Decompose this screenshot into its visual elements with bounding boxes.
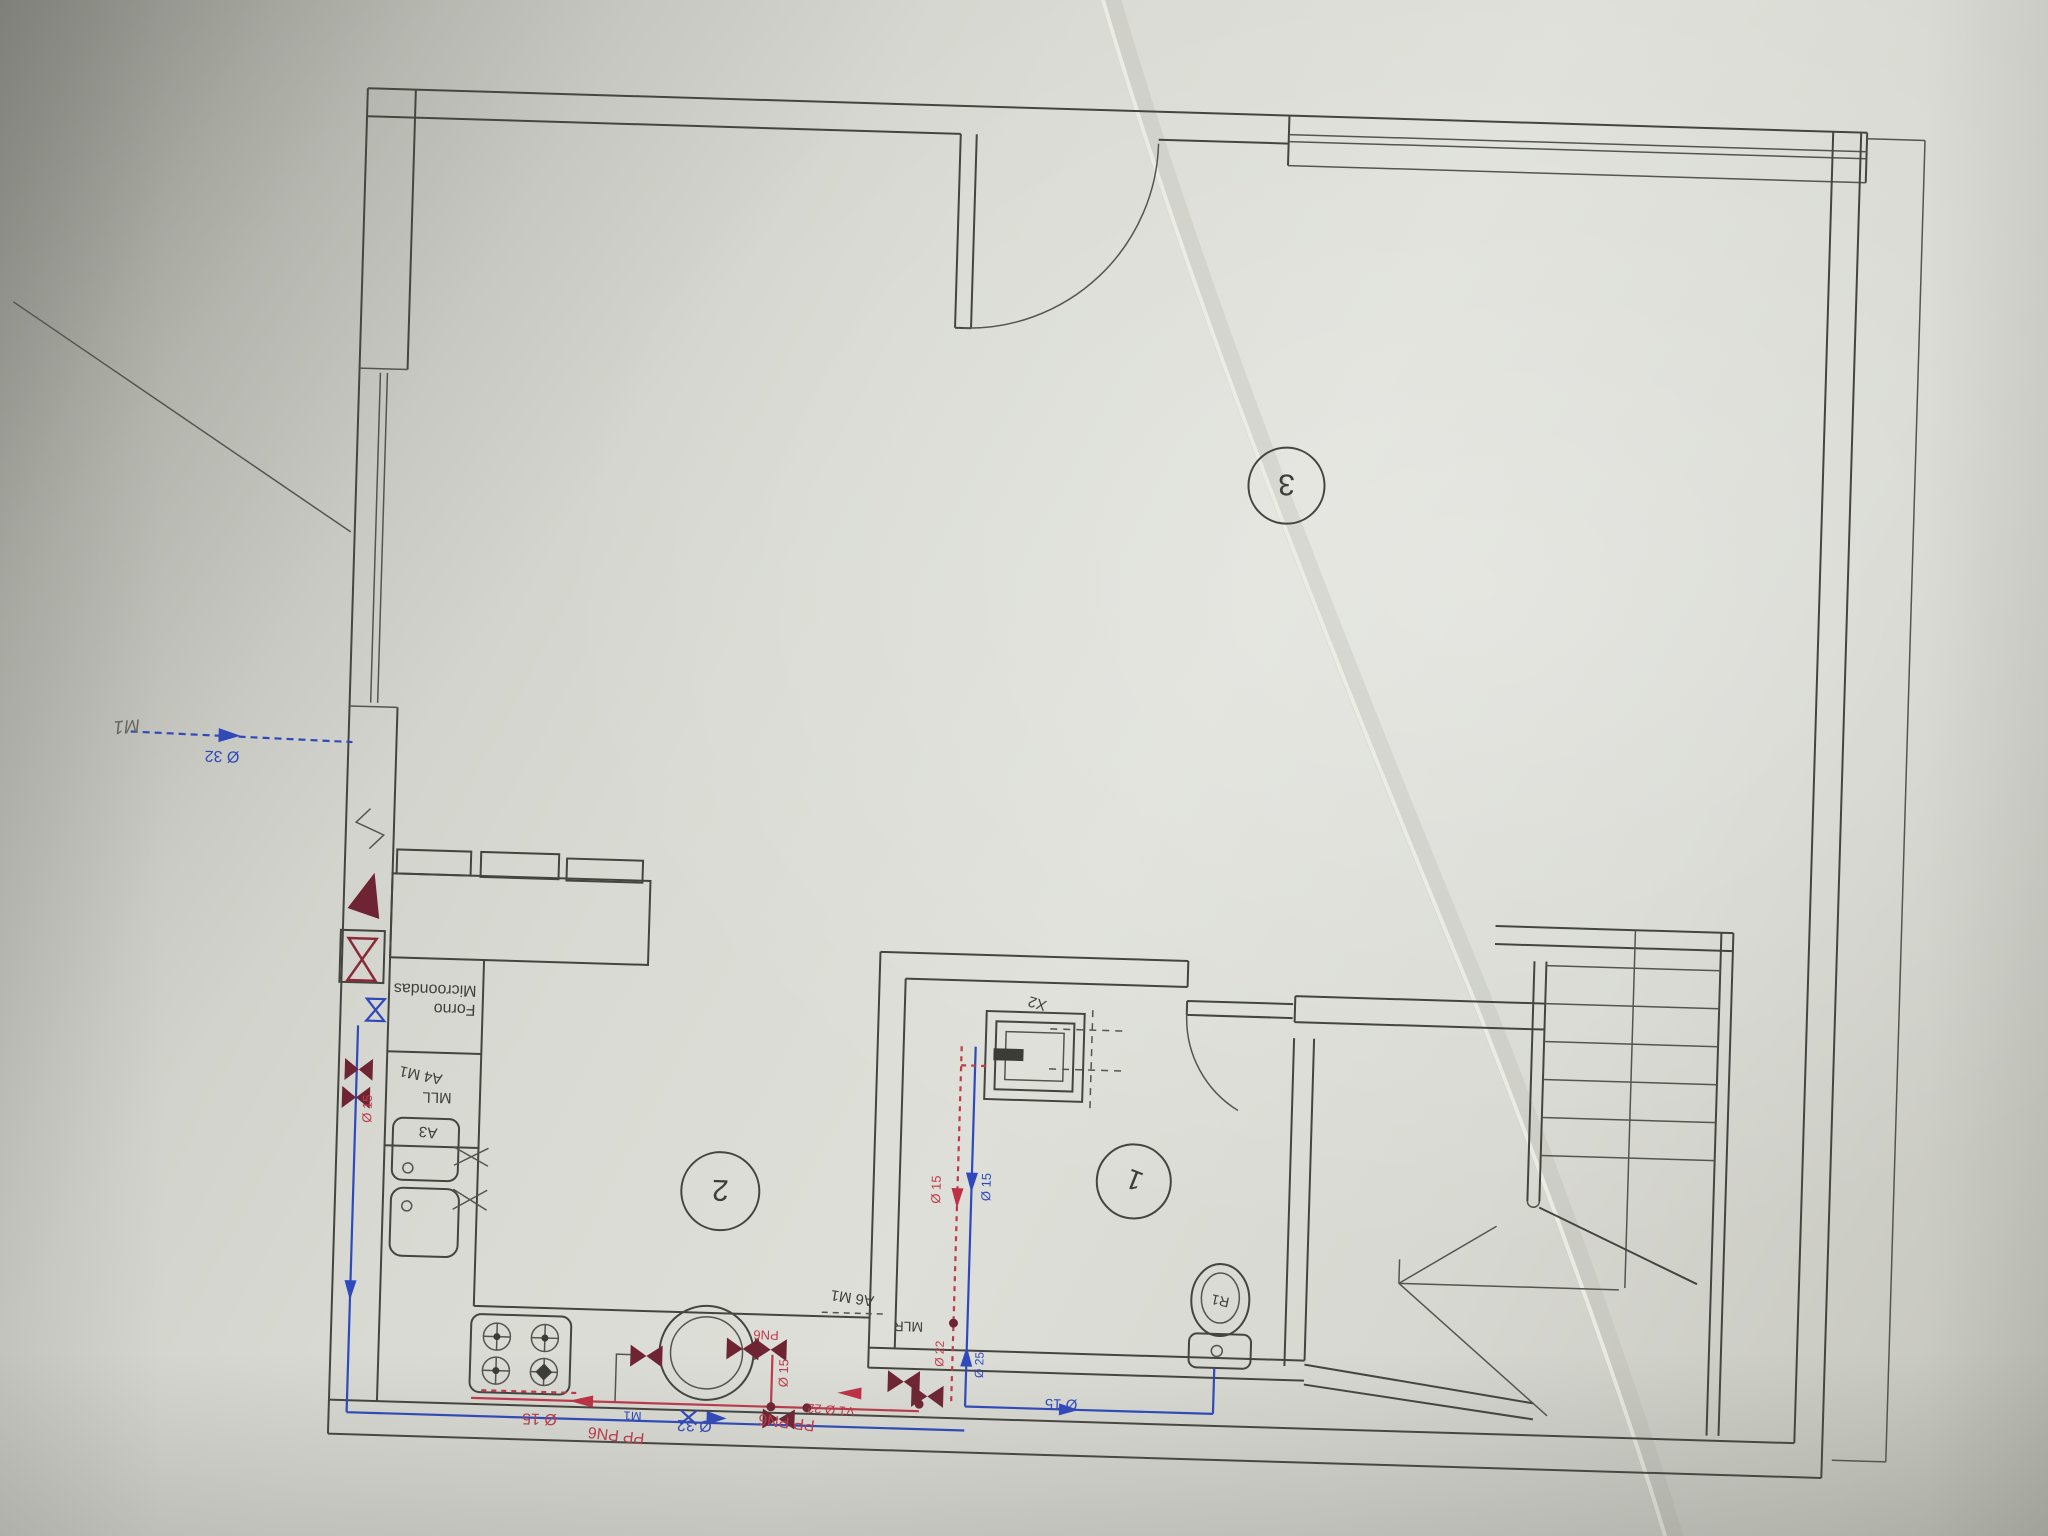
label-wc-cold-riser: Ø 15 <box>978 1173 994 1202</box>
valves <box>326 808 960 1434</box>
label-wall-hot-riser: Ø 15 <box>359 1094 375 1123</box>
wall-filter-symbol <box>347 872 380 919</box>
flow-arrow <box>837 1387 861 1400</box>
shower-tray <box>984 1007 1123 1113</box>
entry-door <box>955 134 1159 334</box>
label-valve-v1: V1 Ø 22 <box>807 1401 856 1420</box>
junction-dot <box>766 1402 775 1411</box>
label-toilet-r1: R1 <box>1210 1291 1231 1310</box>
label-microwave: Microondas <box>394 979 477 998</box>
label-main-inlet: Ø 32 <box>204 747 239 765</box>
counter-appliance-1 <box>397 849 472 875</box>
label-shower-cold-riser: Ø 25 <box>972 1351 987 1378</box>
hot-water-lines <box>471 1032 992 1419</box>
room-tag-2: 2 <box>680 1151 760 1231</box>
valve-bowtie <box>630 1345 663 1368</box>
room-tag-1: 1 <box>1096 1143 1172 1219</box>
counter-appliance-2 <box>481 852 560 879</box>
stair-treads <box>1541 966 1721 1161</box>
label-shower-x2: X2 <box>1026 992 1048 1014</box>
toilet <box>1188 1263 1253 1369</box>
meter-valve-symbol <box>347 938 376 981</box>
wc-room <box>867 952 1546 1420</box>
cold-water-lines <box>111 725 1233 1439</box>
handrail-end <box>1527 1201 1539 1207</box>
junction-dot <box>949 1319 958 1328</box>
wc-door-swing-arc <box>1184 1015 1241 1111</box>
label-kitchen-hot: Ø 15 <box>522 1409 557 1427</box>
label-kitchen-cold: Ø 32 <box>677 1416 712 1434</box>
flow-arrow <box>344 1280 357 1300</box>
label-boiler-pn6: PN6 <box>753 1327 779 1343</box>
main-inlet-line <box>131 731 353 742</box>
kitchen-counter <box>390 873 650 965</box>
washer-leader <box>822 1312 886 1314</box>
wall-break-symbol <box>355 808 384 849</box>
flow-arrow <box>965 1172 978 1192</box>
kitchen <box>377 849 899 1410</box>
lot-boundary-line <box>7 302 357 532</box>
label-washer-mlr: MLR <box>893 1318 923 1335</box>
flow-arrow <box>569 1395 593 1408</box>
labels: 2 1 3 Forno Microondas MLL A4 M1 A3 X2 R… <box>92 413 1326 1466</box>
room-number: 3 <box>1278 467 1296 500</box>
floor-plan-photo: 2 1 3 Forno Microondas MLL A4 M1 A3 X2 R… <box>0 0 2048 1536</box>
label-point-a6: A6 M1 <box>830 1286 875 1309</box>
label-boiler-out: Ø 15 <box>776 1359 792 1388</box>
window-top-right <box>1288 116 1867 183</box>
shower-drain <box>993 1048 1023 1061</box>
drawing: 2 1 3 Forno Microondas MLL A4 M1 A3 X2 R… <box>0 78 1925 1483</box>
room-number: 1 <box>1121 1163 1147 1198</box>
label-wc-hot-riser: Ø 15 <box>928 1175 944 1204</box>
label-cistern-branch: Ø 15 <box>1045 1395 1078 1413</box>
stove <box>469 1314 571 1395</box>
entry-door-swing-arc <box>963 138 1159 334</box>
label-pipe-pn6-a: PP PN6 <box>587 1423 645 1447</box>
toilet-cistern <box>1188 1333 1251 1369</box>
pencil-meter-note: M1 <box>113 714 141 737</box>
kitchen-sinks <box>389 1117 489 1258</box>
label-shower-hot-riser: Ø 22 <box>932 1340 947 1367</box>
label-oven: Forno <box>433 1000 475 1018</box>
stair-centerline <box>1625 930 1636 1288</box>
exterior-walls <box>0 78 1925 1480</box>
water-heater <box>658 1304 755 1401</box>
label-dishwasher: MLL <box>422 1088 452 1106</box>
flow-arrow <box>951 1188 964 1208</box>
wc-door <box>1184 1001 1293 1112</box>
label-meter-valve: M1 <box>623 1408 641 1424</box>
label-sink-a3: A3 <box>418 1122 438 1141</box>
paper-crease <box>1100 0 1676 1536</box>
valve-bowtie <box>344 1058 373 1081</box>
floor-plan-svg: 2 1 3 Forno Microondas MLL A4 M1 A3 X2 R… <box>0 0 2048 1536</box>
flow-arrow <box>218 728 240 743</box>
label-point-a4: A4 M1 <box>398 1062 444 1087</box>
room-number: 2 <box>712 1173 730 1206</box>
meter-symbol <box>366 999 385 1022</box>
